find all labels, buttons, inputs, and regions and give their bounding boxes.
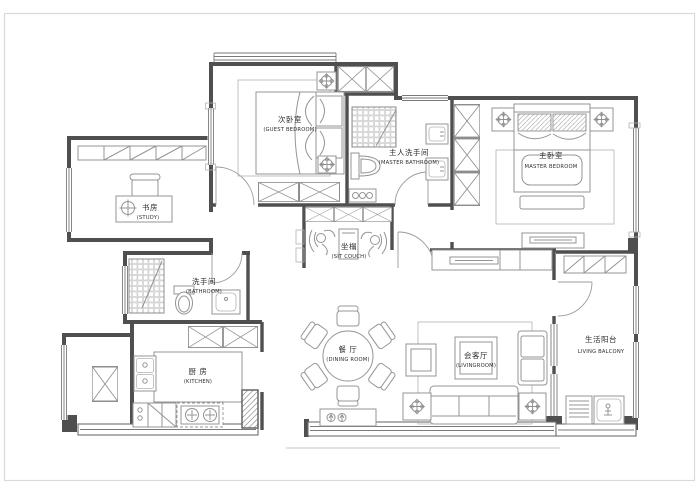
wardrobe — [259, 182, 299, 201]
corner-cabinet — [133, 403, 176, 427]
end-table — [519, 393, 546, 420]
closet-strip — [338, 67, 393, 92]
room-label-en: LIVING BALCONY — [578, 349, 625, 355]
shower — [352, 107, 396, 147]
wardrobe — [300, 182, 340, 201]
kitchen-sink — [134, 356, 156, 391]
dining-chair — [367, 362, 396, 391]
balcony-wardrobe — [564, 256, 626, 273]
room-label-zh: 会客厅 — [464, 350, 488, 360]
room-label-en: (GUEST BEDROOM) — [263, 127, 316, 133]
room-label-zh: 坐榻 — [341, 241, 357, 251]
room-label-en: MASTER BEDROOM — [525, 164, 578, 170]
cabinet — [188, 326, 222, 347]
room-bathroom: 洗手间 (BATHROOM) — [129, 259, 240, 314]
dining-chair — [299, 362, 328, 391]
armchair — [518, 331, 547, 385]
room-label-en: (LIVINGROOM) — [456, 363, 496, 369]
room-guest-bedroom: 次卧室 (GUEST BEDROOM) — [238, 72, 344, 202]
pillow — [553, 114, 586, 131]
dining-chair — [367, 320, 396, 349]
wardrobe — [454, 173, 479, 206]
room-label-zh: 次卧室 — [278, 114, 302, 124]
room-living-balcony: 生活阳台 LIVING BALCONY — [566, 334, 625, 424]
cabinet — [305, 207, 333, 221]
bed-bench — [520, 196, 584, 209]
room-label-en: (BATHROOM) — [186, 289, 222, 295]
plant-stand — [406, 344, 436, 376]
desk-chair — [130, 174, 160, 198]
wardrobe — [454, 139, 479, 172]
dining-chair — [299, 320, 328, 349]
dining-chair — [337, 306, 359, 326]
room-master-bedroom: 主卧室 MASTER BEDROOM — [454, 104, 626, 273]
hall-door — [398, 232, 434, 268]
room-label-zh: 主人洗手间 — [389, 147, 429, 157]
master-bathroom-door — [395, 172, 428, 205]
room-label-zh: 生活阳台 — [585, 334, 617, 344]
guest-bedroom-door — [216, 167, 254, 205]
bay-window — [214, 53, 336, 62]
wine-cabinet — [320, 409, 376, 426]
toilet-tank — [351, 153, 359, 179]
wardrobe — [454, 105, 479, 138]
washing-machine — [566, 396, 592, 424]
pillow — [316, 128, 342, 158]
room-kitchen: 厨 房 (KITCHEN) — [133, 326, 258, 428]
cabinet — [223, 326, 257, 347]
room-sit-couch: 坐榻 (SIT COUCH) — [296, 207, 392, 262]
pillar — [242, 390, 258, 428]
dining-table — [323, 331, 373, 381]
bathroom-door — [212, 253, 242, 283]
end-table — [403, 393, 431, 420]
balcony-door — [558, 282, 592, 316]
room-dining: 餐 厅 (DINING ROOM) — [299, 306, 396, 426]
ac-unit — [92, 367, 117, 402]
pillow — [316, 96, 342, 126]
headboard — [514, 104, 590, 112]
room-label-en: (DINING ROOM) — [326, 357, 369, 363]
counter — [154, 352, 242, 402]
room-label-en: (MASTER BATHROOM) — [379, 160, 439, 166]
towel-tray — [349, 189, 376, 202]
room-label-zh: 书房 — [142, 202, 158, 212]
cabinet — [334, 207, 362, 221]
dining-chair — [337, 386, 359, 406]
laundry-sink — [594, 396, 624, 424]
room-label-en: (KITCHEN) — [184, 379, 212, 385]
room-living: 会客厅 (LIVINGROOM) — [403, 250, 552, 424]
room-label-zh: 洗手间 — [192, 276, 216, 286]
floor-plan-page: 次卧室 (GUEST BEDROOM) 主人洗手间 (MASTER BATHRO… — [0, 0, 700, 495]
pillow — [518, 114, 551, 131]
shower — [129, 259, 164, 313]
bookshelf — [78, 146, 206, 160]
room-label-en: (STUDY) — [137, 215, 160, 221]
room-label-zh: 主卧室 — [539, 150, 563, 160]
left-balcony — [92, 367, 117, 402]
room-label-zh: 厨 房 — [189, 366, 208, 376]
room-label-zh: 餐 厅 — [339, 345, 358, 354]
room-study: 书房 (STUDY) — [78, 146, 206, 222]
sofa — [430, 386, 518, 424]
stove — [177, 403, 223, 427]
room-master-bathroom: 主人洗手间 (MASTER BATHROOM) — [349, 107, 448, 202]
cabinet — [363, 207, 391, 221]
room-label-en: (SIT COUCH) — [332, 254, 367, 260]
floor-plan-canvas: 次卧室 (GUEST BEDROOM) 主人洗手间 (MASTER BATHRO… — [0, 0, 700, 495]
